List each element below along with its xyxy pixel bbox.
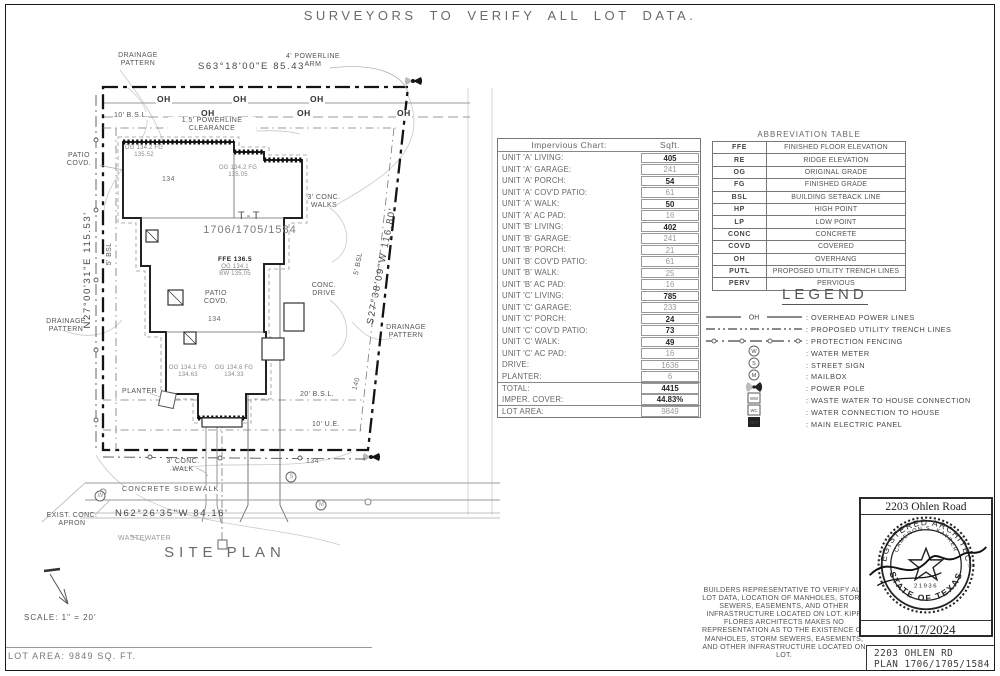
impervious-row-value: 16 [641, 348, 699, 359]
abbreviation-meaning: LOW POINT [767, 216, 906, 228]
impervious-chart: Impervious Chart: Sqft. UNIT 'A' LIVING:… [497, 138, 701, 418]
impervious-row: UNIT 'C' AC PAD:16 [498, 348, 700, 360]
label-ue-10: 10' U.E. [312, 421, 340, 429]
label-grade-note-2: OG 134.2 FG 135.05 [218, 165, 258, 178]
abbreviation-row: CONCCONCRETE [713, 228, 906, 240]
planter-box [158, 391, 176, 409]
impervious-row: UNIT 'B' PORCH:21 [498, 244, 700, 256]
abbreviation-row: LPLOW POINT [713, 216, 906, 228]
impervious-row-value: 73 [641, 325, 699, 336]
label-contour-134-c: 134 [306, 458, 319, 466]
mailbox-icon: M [318, 502, 325, 509]
impervious-row-label: UNIT 'C' GARAGE: [498, 303, 641, 312]
legend-item-label: : OVERHEAD POWER LINES [806, 313, 915, 322]
label-sidewalk: CONCRETE SIDEWALK [122, 486, 220, 494]
abbreviation-table-grid: FFEFINISHED FLOOR ELEVATIONRERIDGE ELEVA… [712, 141, 906, 291]
impervious-row: UNIT 'B' COV'D PATIO:61 [498, 256, 700, 268]
impervious-row-label: UNIT 'C' AC PAD: [498, 349, 641, 358]
overhead-power-lines [103, 103, 470, 117]
impervious-row-label: UNIT 'C' PORCH: [498, 314, 641, 323]
impervious-row-value: 1636 [641, 360, 699, 371]
impervious-row: UNIT 'A' PORCH:54 [498, 175, 700, 187]
label-conc-walks: 3' CONC. WALKS [296, 194, 352, 210]
label-building-name: T-T [205, 213, 295, 221]
titleblock-text: 2203 OHLEN RD PLAN 1706/1705/1584 [874, 648, 990, 670]
impervious-row: UNIT 'B' LIVING:402 [498, 221, 700, 233]
impervious-row-value: 4415 [641, 383, 699, 394]
impervious-row-label: UNIT 'A' LIVING: [498, 153, 641, 162]
power-pole-icon [405, 77, 422, 85]
legend-item-label: : MAIN ELECTRIC PANEL [806, 420, 902, 429]
svg-text:S: S [752, 361, 756, 367]
impervious-row-value: 6 [641, 371, 699, 382]
impervious-row: UNIT 'C' PORCH:24 [498, 313, 700, 325]
label-grade-note-3: OG 134.1 FG 134.63 [168, 365, 208, 378]
impervious-row-value: 49 [641, 337, 699, 348]
sidewalk-street [42, 483, 500, 522]
label-conc-drive: CONC. DRIVE [302, 282, 346, 298]
abbreviation-key: HP [713, 203, 767, 215]
label-apron: EXIST. CONC. APRON [44, 512, 100, 528]
impervious-row: UNIT 'A' AC PAD:16 [498, 210, 700, 222]
stamp-address: 2203 Ohlen Road [861, 499, 991, 515]
label-contour-134-a: 134 [162, 176, 175, 184]
label-oh-1: OH [156, 96, 172, 104]
label-oh-6: OH [396, 110, 412, 118]
building-footprint [123, 142, 302, 418]
drawing-sheet: SURVEYORS TO VERIFY ALL LOT DATA. [0, 0, 1000, 676]
impervious-row-label: UNIT 'B' PORCH: [498, 245, 641, 254]
svg-text:WC: WC [751, 408, 758, 413]
architect-seal-icon: REGISTERED ARCHITECT STATE OF TEXAS CAME… [861, 515, 991, 615]
impervious-row: UNIT 'A' WALK:50 [498, 198, 700, 210]
impervious-row-value: 50 [641, 199, 699, 210]
north-arrow-icon [44, 569, 68, 604]
impervious-row: UNIT 'A' COV'D PATIO:61 [498, 187, 700, 199]
stamp-star-right: ☆ [967, 563, 973, 570]
impervious-row: DRIVE:1636 [498, 359, 700, 371]
impervious-row-value: 61 [641, 187, 699, 198]
titleblock-divider-top [866, 645, 994, 646]
impervious-row: UNIT 'B' GARAGE:241 [498, 233, 700, 245]
abbreviation-meaning: HIGH POINT [767, 203, 906, 215]
abbreviation-key: RE [713, 154, 767, 166]
impervious-row-label: UNIT 'A' GARAGE: [498, 165, 641, 174]
stamp-license-number: 21936 [914, 583, 938, 589]
abbreviation-meaning: BUILDING SETBACK LINE [767, 191, 906, 203]
abbreviation-row: RERIDGE ELEVATION [713, 154, 906, 166]
label-grade-note-4: OG 134.6 FG 134.33 [214, 365, 254, 378]
abbreviation-row: HPHIGH POINT [713, 203, 906, 215]
stamp-arc-top: REGISTERED ARCHITECT [861, 515, 974, 563]
label-og-main: OG 134.1 [200, 264, 270, 271]
titleblock-address: 2203 OHLEN RD [874, 648, 990, 659]
label-drainage-pattern-top: DRAINAGE PATTERN [110, 52, 166, 68]
impervious-row-label: UNIT 'B' GARAGE: [498, 234, 641, 243]
street-sign-icon: S [288, 474, 295, 481]
label-oh-5: OH [296, 110, 312, 118]
impervious-row-value: 405 [641, 153, 699, 164]
legend-item-label: : MAILBOX [806, 372, 847, 381]
abbreviation-key: BSL [713, 191, 767, 203]
abbreviation-table: ABBREVIATION TABLE FFEFINISHED FLOOR ELE… [712, 130, 906, 291]
impervious-row-label: UNIT 'C' LIVING: [498, 291, 641, 300]
impervious-row-value: 241 [641, 164, 699, 175]
impervious-row-label: LOT AREA: [498, 407, 641, 416]
impervious-row-value: 44.83% [641, 394, 699, 405]
impervious-row: LOT AREA:9849 [498, 405, 700, 417]
label-drainage-pattern-right: DRAINAGE PATTERN [378, 324, 434, 340]
abbreviation-key: COVD [713, 241, 767, 253]
label-wastewater: WASTEWATER [118, 535, 171, 543]
svg-text:WW: WW [750, 396, 758, 401]
legend-item-label: : WATER METER [806, 349, 870, 358]
legend-title: LEGEND [782, 286, 868, 305]
scale-note: SCALE: 1" = 20' [24, 613, 97, 622]
svg-text:M: M [752, 373, 757, 379]
impervious-row-value: 21 [641, 245, 699, 256]
legend-item-label: : PROPOSED UTILITY TRENCH LINES [806, 325, 951, 334]
abbreviation-key: FG [713, 179, 767, 191]
label-bsl-20: 20' B.S.L. [300, 391, 334, 399]
abbreviation-key: PERV [713, 278, 767, 290]
impervious-row-label: UNIT 'B' LIVING: [498, 222, 641, 231]
impervious-row-label: UNIT 'A' COV'D PATIO: [498, 188, 641, 197]
impervious-row-value: 241 [641, 233, 699, 244]
impervious-row: UNIT 'C' COV'D PATIO:73 [498, 325, 700, 337]
impervious-row: TOTAL:4415 [498, 382, 700, 394]
label-powerline-clearance: 1.5' POWERLINE CLEARANCE [168, 117, 256, 133]
impervious-row-value: 785 [641, 291, 699, 302]
abbreviation-row: OHOVERHANG [713, 253, 906, 265]
svg-text:MEP: MEP [749, 420, 758, 425]
label-grade-note-1: OG 134.2 FG 135.52 [124, 145, 164, 158]
impervious-chart-title: Impervious Chart: [498, 140, 640, 150]
impervious-row: UNIT 'A' GARAGE:241 [498, 164, 700, 176]
abbreviation-table-title: ABBREVIATION TABLE [712, 130, 906, 139]
impervious-row: UNIT 'B' WALK:25 [498, 267, 700, 279]
label-patio-covd-left: PATIO COVD. [56, 152, 102, 168]
impervious-row-value: 61 [641, 256, 699, 267]
label-conc-walk: 3' CONC. WALK [158, 458, 208, 474]
impervious-row-value: 24 [641, 314, 699, 325]
impervious-row-label: UNIT 'C' WALK: [498, 337, 641, 346]
impervious-row-label: UNIT 'B' COV'D PATIO: [498, 257, 641, 266]
titleblock-divider [866, 645, 867, 671]
label-bearing-bottom: N62°26'35"W 84.16' [115, 510, 229, 518]
impervious-row: UNIT 'A' LIVING:405 [498, 152, 700, 164]
impervious-chart-header: Impervious Chart: Sqft. [498, 139, 700, 152]
impervious-row-value: 54 [641, 176, 699, 187]
abbreviation-meaning: FINISHED GRADE [767, 179, 906, 191]
site-plan-heading: SITE PLAN [160, 544, 290, 561]
impervious-row-label: UNIT 'A' WALK: [498, 199, 641, 208]
impervious-row-label: UNIT 'B' AC PAD: [498, 280, 641, 289]
abbreviation-key: FFE [713, 142, 767, 154]
legend-item-label: : POWER POLE [806, 384, 865, 393]
impervious-row: UNIT 'C' LIVING:785 [498, 290, 700, 302]
abbreviation-row: FGFINISHED GRADE [713, 179, 906, 191]
impervious-row: IMPER. COVER:44.83% [498, 394, 700, 406]
box-symbol-filled-icon: MEP [702, 415, 806, 433]
label-oh-3: OH [309, 96, 325, 104]
impervious-row-label: UNIT 'A' AC PAD: [498, 211, 641, 220]
footer-divider [6, 647, 372, 648]
abbreviation-meaning: OVERHANG [767, 253, 906, 265]
label-bsl-5-left: 5' BSL [106, 230, 114, 278]
impervious-row-label: DRIVE: [498, 360, 641, 369]
impervious-row: UNIT 'B' AC PAD:16 [498, 279, 700, 291]
impervious-chart-unit: Sqft. [640, 140, 700, 150]
impervious-row-label: TOTAL: [498, 384, 641, 393]
abbreviation-row: OGORIGINAL GRADE [713, 166, 906, 178]
context-lines [468, 88, 492, 515]
impervious-row-label: UNIT 'C' COV'D PATIO: [498, 326, 641, 335]
abbreviation-meaning: CONCRETE [767, 228, 906, 240]
impervious-row-value: 233 [641, 302, 699, 313]
svg-text:REGISTERED ARCHITECT: REGISTERED ARCHITECT [861, 515, 974, 563]
abbreviation-meaning: COVERED [767, 241, 906, 253]
abbreviation-key: OG [713, 166, 767, 178]
abbreviation-row: PUTLPROPOSED UTILITY TRENCH LINES [713, 265, 906, 277]
abbreviation-key: OH [713, 253, 767, 265]
impervious-row-label: UNIT 'B' WALK: [498, 268, 641, 277]
label-powerline-arm: 4' POWERLINE ARM [282, 53, 344, 69]
stamp-date: 10/17/2024 [861, 620, 991, 638]
impervious-row: UNIT 'C' GARAGE:233 [498, 302, 700, 314]
label-drainage-pattern-left: DRAINAGE PATTERN [38, 318, 94, 334]
impervious-row-label: UNIT 'A' PORCH: [498, 176, 641, 185]
abbreviation-key: PUTL [713, 265, 767, 277]
impervious-row: UNIT 'C' WALK:49 [498, 336, 700, 348]
impervious-row-value: 16 [641, 210, 699, 221]
abbreviation-key: CONC [713, 228, 767, 240]
label-oh-2: OH [232, 96, 248, 104]
label-bsl-10: 10' B.S.L. [114, 112, 148, 120]
label-contour-134-b: 134 [208, 316, 221, 324]
label-building-plans: 1706/1705/1584 [195, 227, 305, 235]
titleblock-plan: PLAN 1706/1705/1584 [874, 659, 990, 670]
label-patio-covd-mid: PATIO COVD. [192, 290, 240, 306]
svg-text:W: W [751, 349, 757, 355]
legend-item-label: : STREET SIGN [806, 361, 865, 370]
abbreviation-key: LP [713, 216, 767, 228]
abbreviation-meaning: PROPOSED UTILITY TRENCH LINES [767, 265, 906, 277]
impervious-row: PLANTER:6 [498, 371, 700, 383]
abbreviation-meaning: RIDGE ELEVATION [767, 154, 906, 166]
legend-item-label: : WATER CONNECTION TO HOUSE [806, 408, 940, 417]
abbreviation-row: COVDCOVERED [713, 241, 906, 253]
abbreviation-meaning: ORIGINAL GRADE [767, 166, 906, 178]
abbreviation-row: FFEFINISHED FLOOR ELEVATION [713, 142, 906, 154]
legend-item-label: : PROTECTION FENCING [806, 337, 903, 346]
label-ffe: FFE 136.5 [200, 256, 270, 264]
water-meter-icon: W [97, 493, 104, 500]
impervious-row-value: 25 [641, 268, 699, 279]
legend-item: MEP: MAIN ELECTRIC PANEL [702, 418, 988, 430]
footer-lot-area: LOT AREA: 9849 SQ. FT. [8, 651, 136, 661]
impervious-row-label: PLANTER: [498, 372, 641, 381]
power-pole-icon [363, 453, 380, 461]
legend: OH: OVERHEAD POWER LINES: PROPOSED UTILI… [702, 312, 988, 430]
label-planter: PLANTER [122, 388, 157, 396]
impervious-row-label: IMPER. COVER: [498, 395, 641, 404]
label-bw-main: BW 135.05 [200, 271, 270, 278]
stamp-star-icon [909, 548, 942, 579]
impervious-chart-rows: UNIT 'A' LIVING:405UNIT 'A' GARAGE:241UN… [498, 152, 700, 417]
impervious-row-value: 402 [641, 222, 699, 233]
builder-note: BUILDERS REPRESENTATIVE TO VERIFY ALL LO… [699, 586, 869, 659]
architect-stamp: 2203 Ohlen Road REGISTERED ARCHITECT STA… [859, 497, 993, 637]
legend-item-label: : WASTE WATER TO HOUSE CONNECTION [806, 396, 971, 405]
impervious-row-value: 9849 [641, 406, 699, 417]
impervious-row-value: 16 [641, 279, 699, 290]
abbreviation-meaning: FINISHED FLOOR ELEVATION [767, 142, 906, 154]
abbreviation-row: BSLBUILDING SETBACK LINE [713, 191, 906, 203]
